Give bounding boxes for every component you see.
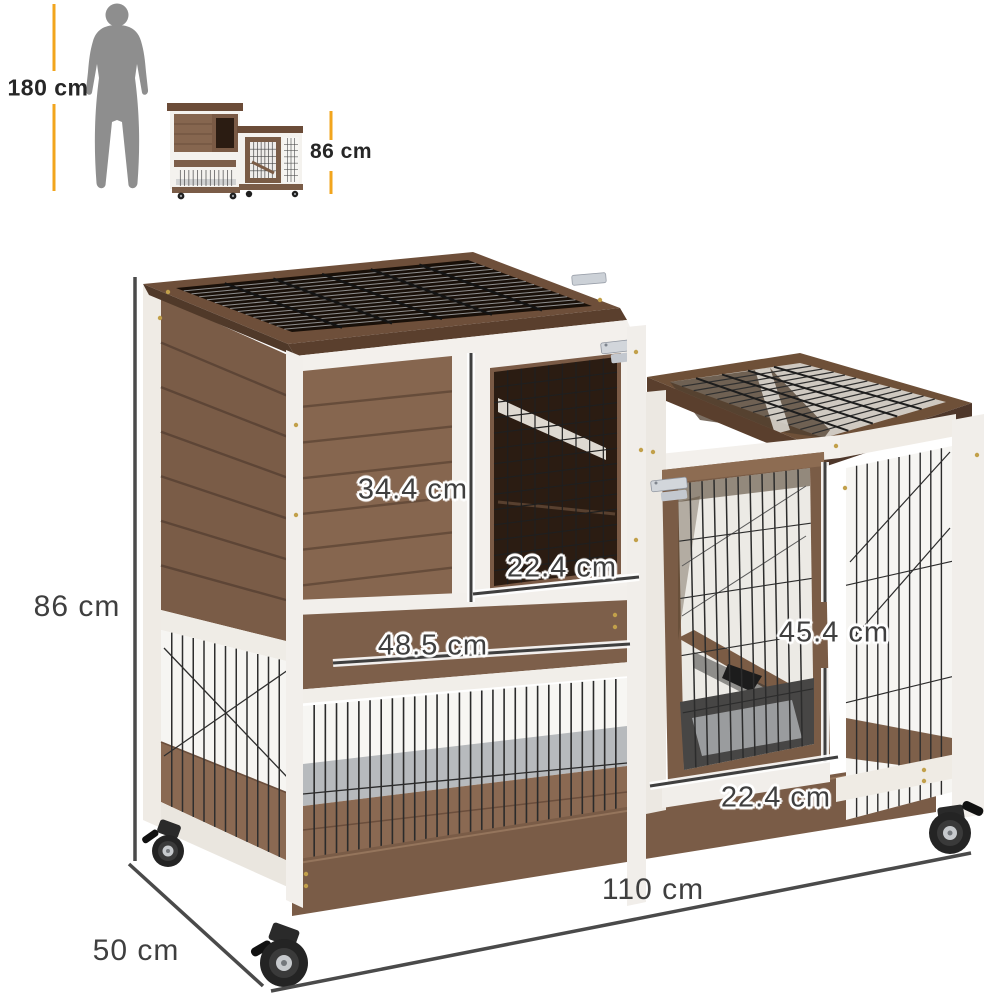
product-dimension-figure: 180 cm 86 cm 86 cm 50 cm 110 cm 34.4 cm … [0,0,1000,1000]
overall-width-label: 110 cm [602,873,704,907]
drawer-width-label: 48.5 cm [378,630,488,663]
hutch-thumbnail [167,103,303,199]
left-front-post [286,350,303,908]
left-rear-post [143,286,161,828]
right-door-width-label: 22.4 cm [721,782,831,815]
human-height-label: 180 cm [7,75,88,102]
left-door-width-label: 22.4 cm [507,552,617,585]
hutch-illustration [0,0,1000,1000]
roof-hinge [572,273,607,286]
right-corner-post [952,414,984,820]
right-left-stile [646,390,666,814]
overall-depth-label: 50 cm [93,934,180,968]
overall-height-label: 86 cm [34,590,121,624]
right-door-height-label: 45.4 cm [779,617,889,650]
left-door-height-label: 34.4 cm [358,474,468,507]
caster-front-left [249,922,308,987]
center-post [627,325,646,906]
caster-rear-left [141,819,184,867]
caster-right [929,800,985,854]
human-silhouette [86,4,148,189]
thumbnail-height-label: 86 cm [310,140,372,164]
